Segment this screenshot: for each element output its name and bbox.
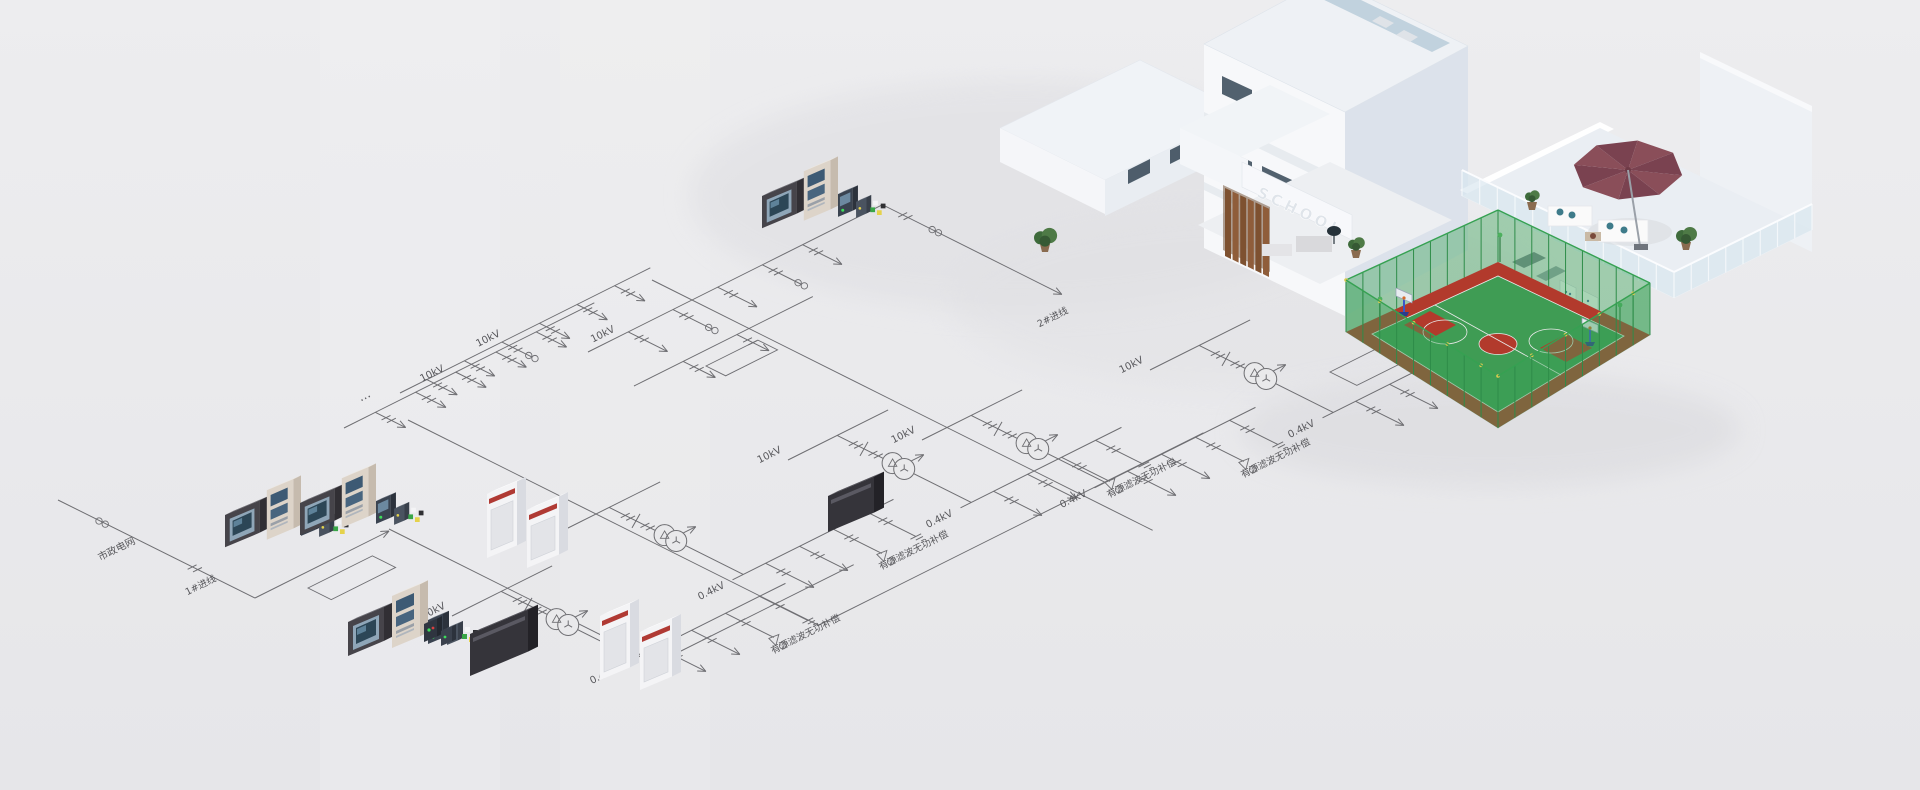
lobby-sofa xyxy=(1296,236,1332,252)
scene-canvas: 10kV10kV10kV市政电网1#进线2#进线10kV0.4kV有源滤波无功补… xyxy=(0,0,1920,790)
scene-stage: 10kV10kV10kV市政电网1#进线2#进线10kV0.4kV有源滤波无功补… xyxy=(0,0,1920,790)
